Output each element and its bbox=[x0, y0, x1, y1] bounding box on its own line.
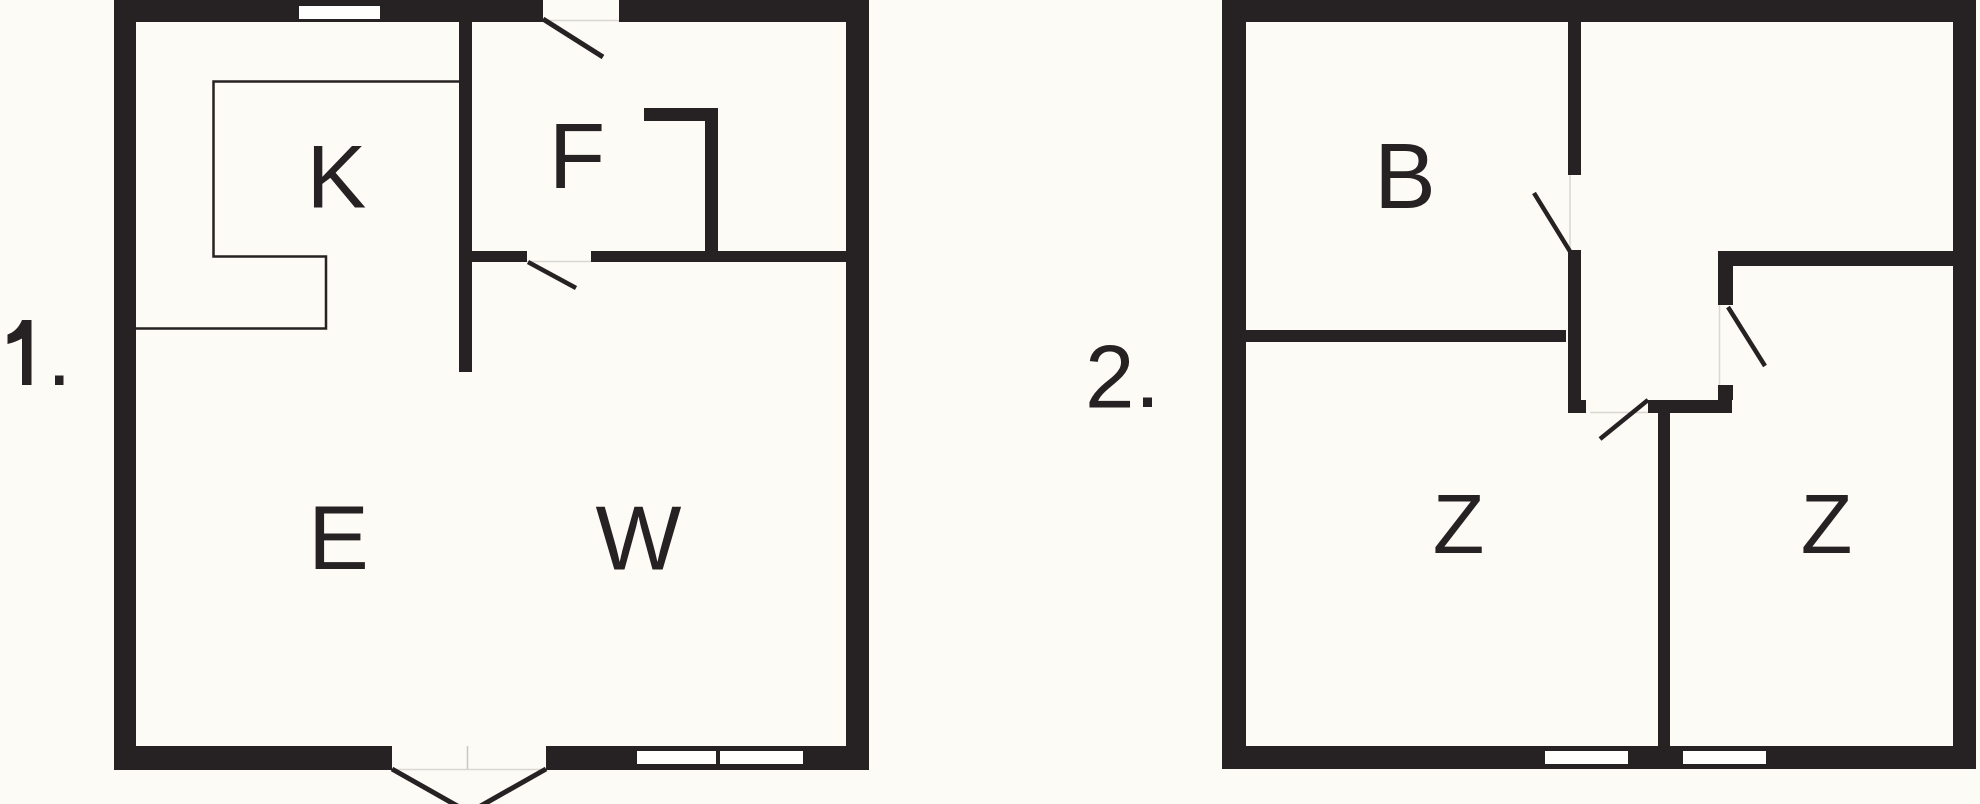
svg-text:K: K bbox=[307, 127, 367, 227]
svg-text:Z: Z bbox=[1433, 477, 1485, 571]
svg-text:W: W bbox=[596, 489, 682, 590]
svg-text:F: F bbox=[549, 104, 606, 208]
svg-text:Z: Z bbox=[1801, 477, 1853, 571]
svg-text:E: E bbox=[308, 488, 369, 589]
svg-text:B: B bbox=[1374, 124, 1436, 228]
svg-text:2: 2 bbox=[1085, 327, 1135, 427]
